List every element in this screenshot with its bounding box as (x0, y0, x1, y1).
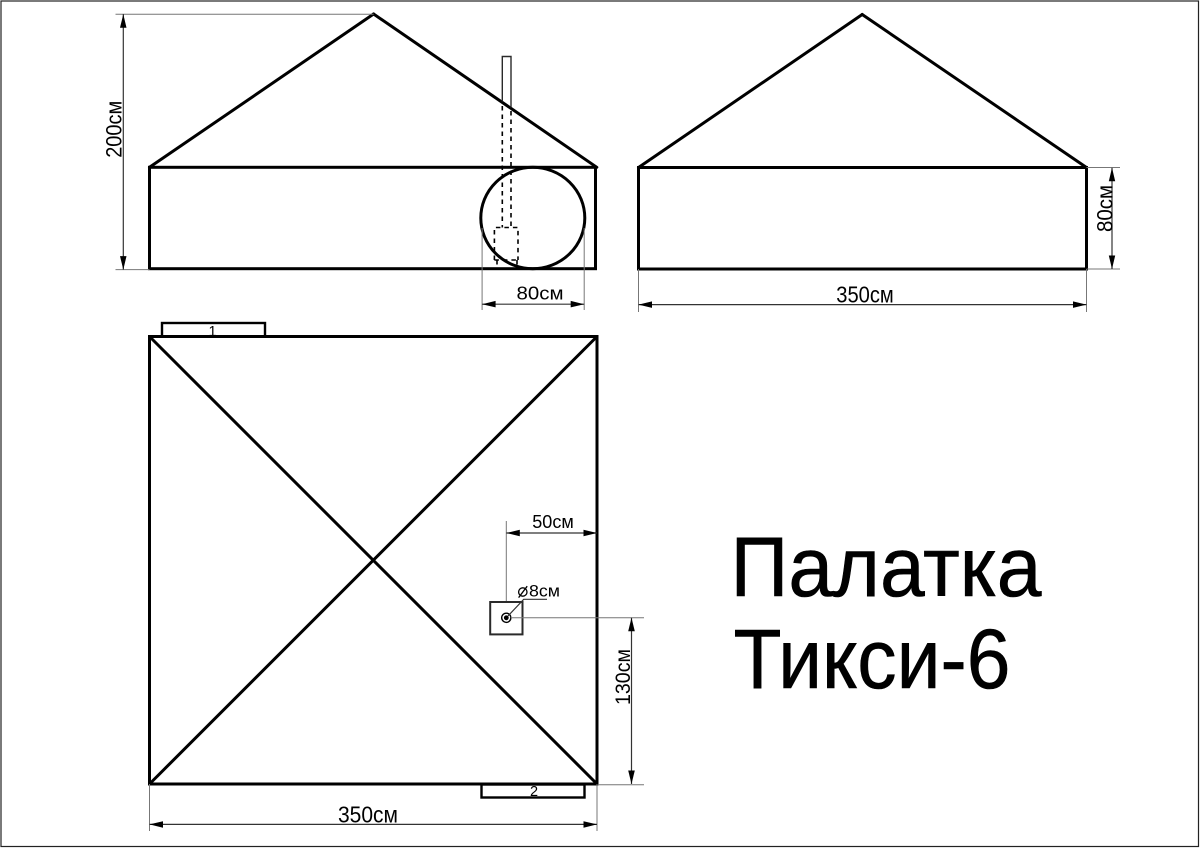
svg-text:50см: 50см (532, 512, 574, 532)
svg-text:350см: 350см (338, 802, 398, 828)
svg-text:350см: 350см (836, 282, 894, 308)
svg-text:Тикси-6: Тикси-6 (734, 612, 1011, 706)
svg-text:80см: 80см (1093, 185, 1118, 232)
svg-text:8см: 8см (529, 582, 560, 601)
svg-text:130см: 130см (611, 649, 635, 705)
svg-text:80см: 80см (517, 284, 564, 304)
svg-text:2: 2 (530, 784, 538, 800)
svg-text:1: 1 (208, 324, 216, 340)
svg-text:200см: 200см (101, 101, 126, 158)
svg-text:Палатка: Палатка (731, 520, 1042, 614)
